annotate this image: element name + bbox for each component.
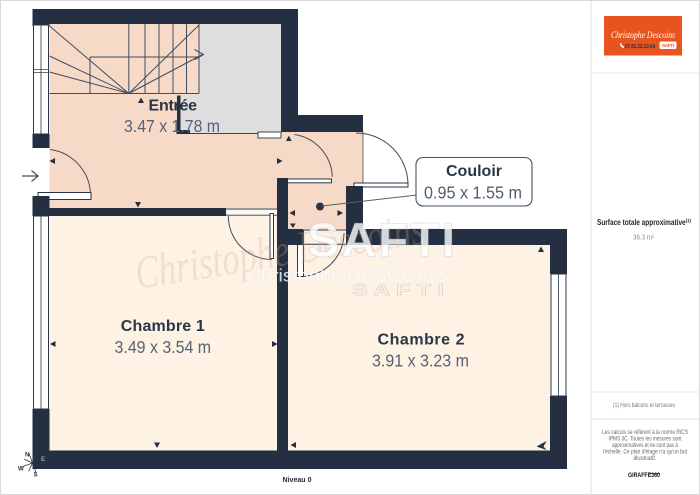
svg-text:S: S xyxy=(34,472,38,479)
svg-text:3.91 x 3.23 m: 3.91 x 3.23 m xyxy=(372,351,469,371)
svg-text:Chambre 2: Chambre 2 xyxy=(378,332,465,349)
svg-text:approximatives et ne sont pas: approximatives et ne sont pas à xyxy=(612,443,679,449)
svg-text:S A F T I: S A F T I xyxy=(352,281,444,300)
svg-text:Chambre 1: Chambre 1 xyxy=(121,318,205,335)
svg-text:SAFTI: SAFTI xyxy=(662,43,674,48)
svg-text:GIRAFFE360: GIRAFFE360 xyxy=(628,472,660,479)
svg-text:3.47 x 1.78 m: 3.47 x 1.78 m xyxy=(124,116,220,136)
svg-text:0.95 x 1.55 m: 0.95 x 1.55 m xyxy=(424,183,522,203)
svg-text:Couloir: Couloir xyxy=(446,163,502,180)
svg-text:07.81.22.10.04: 07.81.22.10.04 xyxy=(625,44,656,50)
svg-text:Christophe Descoins: Christophe Descoins xyxy=(611,30,675,40)
svg-text:N: N xyxy=(25,452,30,459)
svg-text:Niveau 0: Niveau 0 xyxy=(283,475,312,484)
svg-text:l'échelle. Ce plan d'étage n'a: l'échelle. Ce plan d'étage n'a qu'un but xyxy=(603,450,687,456)
svg-text:36.3 m²: 36.3 m² xyxy=(633,233,654,242)
svg-text:IPMS 3C. Toutes les mesures so: IPMS 3C. Toutes les mesures sont xyxy=(609,437,682,443)
svg-text:E: E xyxy=(41,456,45,463)
svg-text:SAFTI: SAFTI xyxy=(307,215,457,268)
svg-text:Les calculs se réfèrent à la n: Les calculs se réfèrent à la norme RICS xyxy=(602,430,688,436)
svg-text:Surface totale approximative⁽¹: Surface totale approximative⁽¹⁾ xyxy=(597,217,691,227)
svg-text:Entrée: Entrée xyxy=(149,98,198,115)
svg-text:W: W xyxy=(18,466,24,473)
svg-text:3.49 x 3.54 m: 3.49 x 3.54 m xyxy=(115,337,212,357)
svg-text:illustratif.: illustratif. xyxy=(634,456,657,462)
svg-text:(1) Hors balcons et terrasses: (1) Hors balcons et terrasses xyxy=(613,403,675,409)
